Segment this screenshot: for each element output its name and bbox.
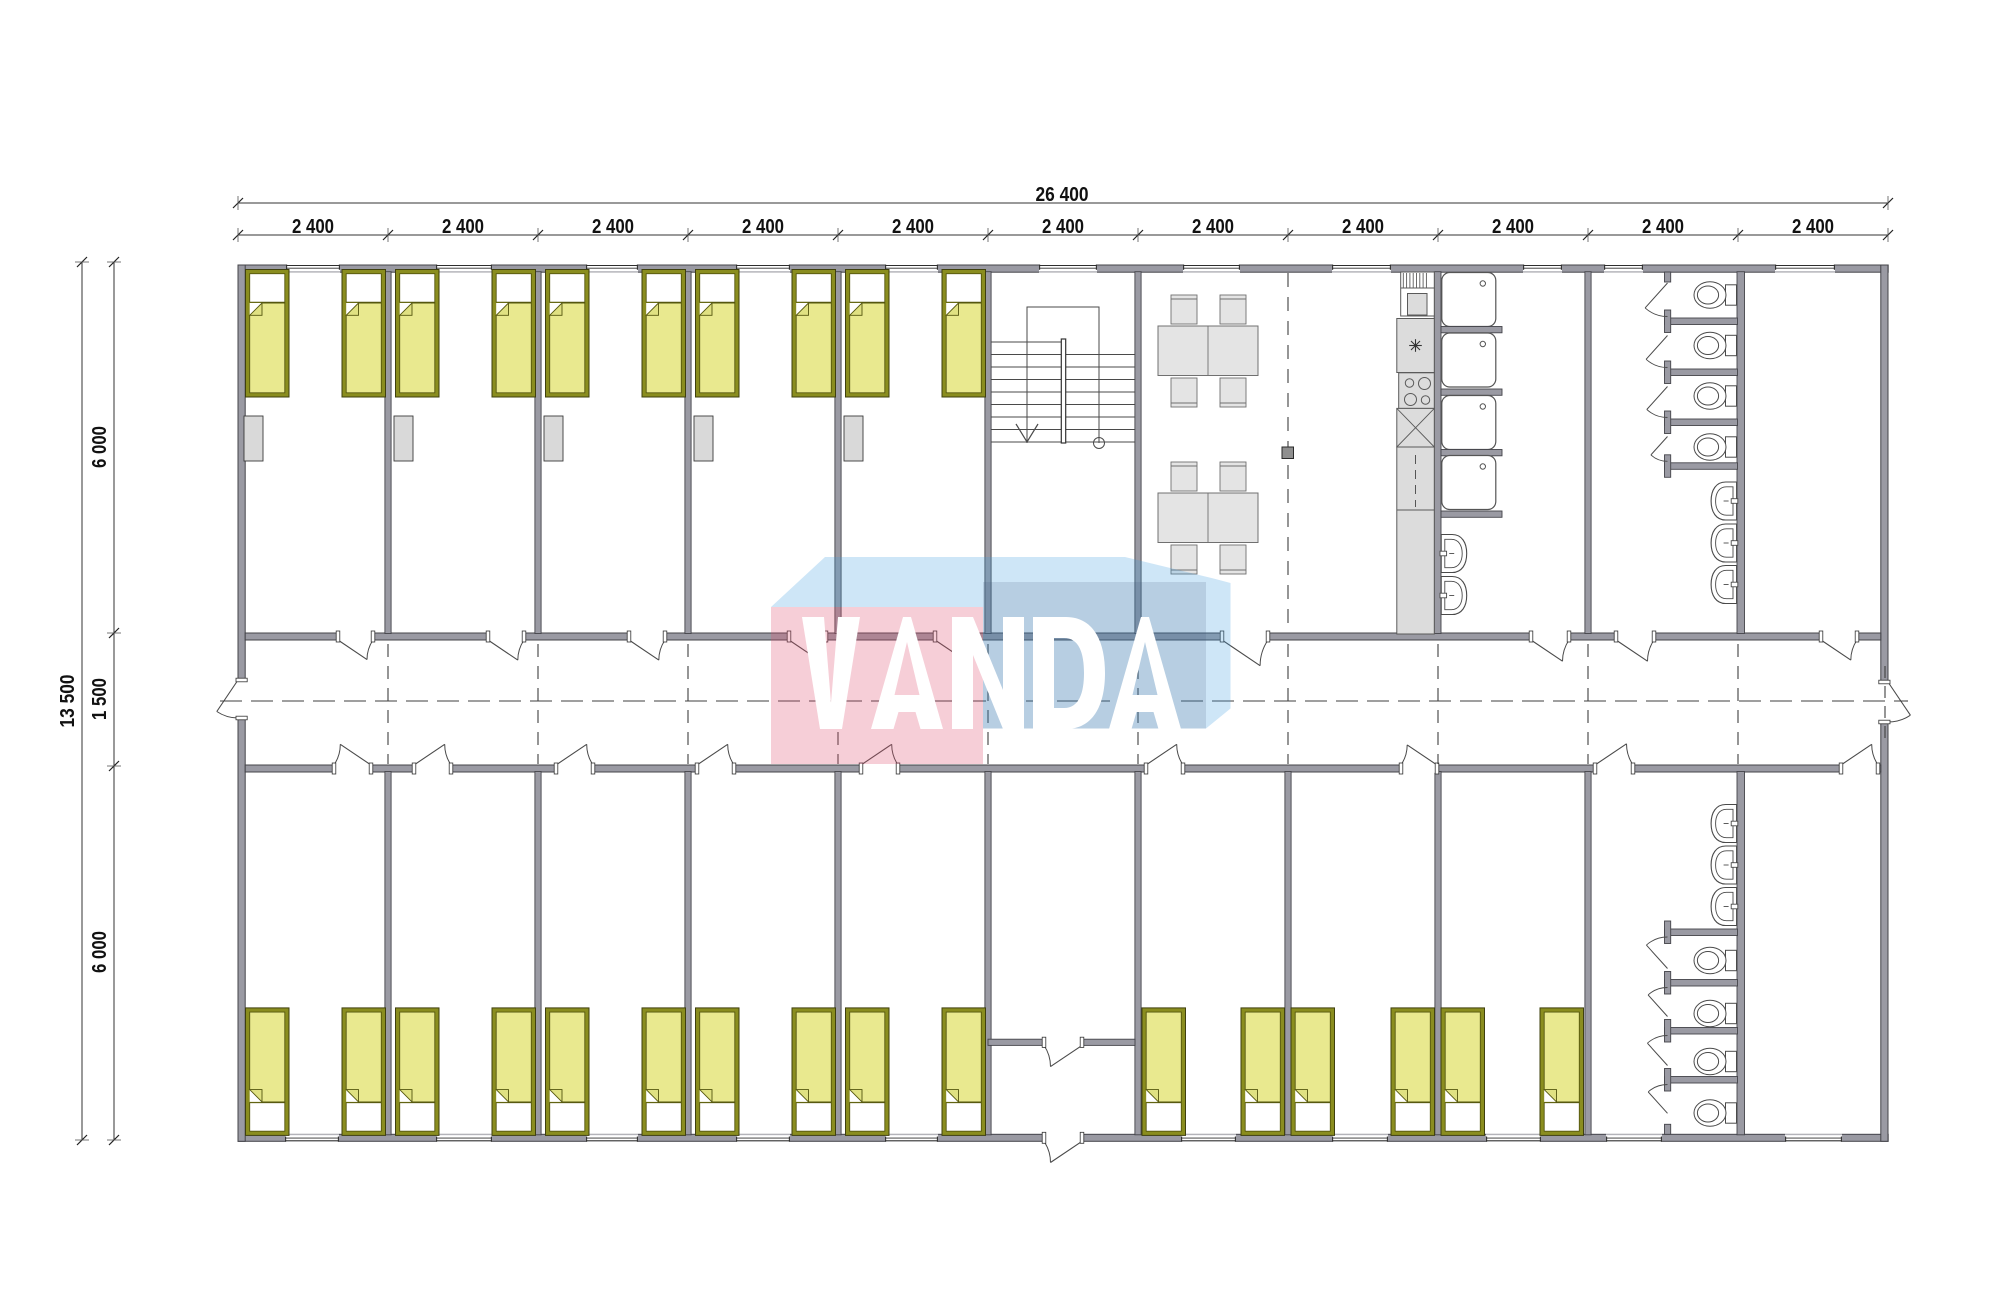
svg-text:2 400: 2 400 <box>1342 216 1384 238</box>
svg-text:2 400: 2 400 <box>442 216 484 238</box>
svg-text:2 400: 2 400 <box>1792 216 1834 238</box>
svg-text:2 400: 2 400 <box>292 216 334 238</box>
svg-text:2 400: 2 400 <box>1042 216 1084 238</box>
svg-text:6 000: 6 000 <box>89 426 111 468</box>
svg-text:2 400: 2 400 <box>1642 216 1684 238</box>
svg-text:6 000: 6 000 <box>89 931 111 973</box>
svg-text:2 400: 2 400 <box>1492 216 1534 238</box>
svg-text:1 500: 1 500 <box>89 678 111 720</box>
svg-text:2 400: 2 400 <box>892 216 934 238</box>
svg-text:2 400: 2 400 <box>1192 216 1234 238</box>
svg-text:26 400: 26 400 <box>1036 184 1089 206</box>
svg-text:2 400: 2 400 <box>742 216 784 238</box>
svg-text:13 500: 13 500 <box>57 675 79 728</box>
svg-text:2 400: 2 400 <box>592 216 634 238</box>
